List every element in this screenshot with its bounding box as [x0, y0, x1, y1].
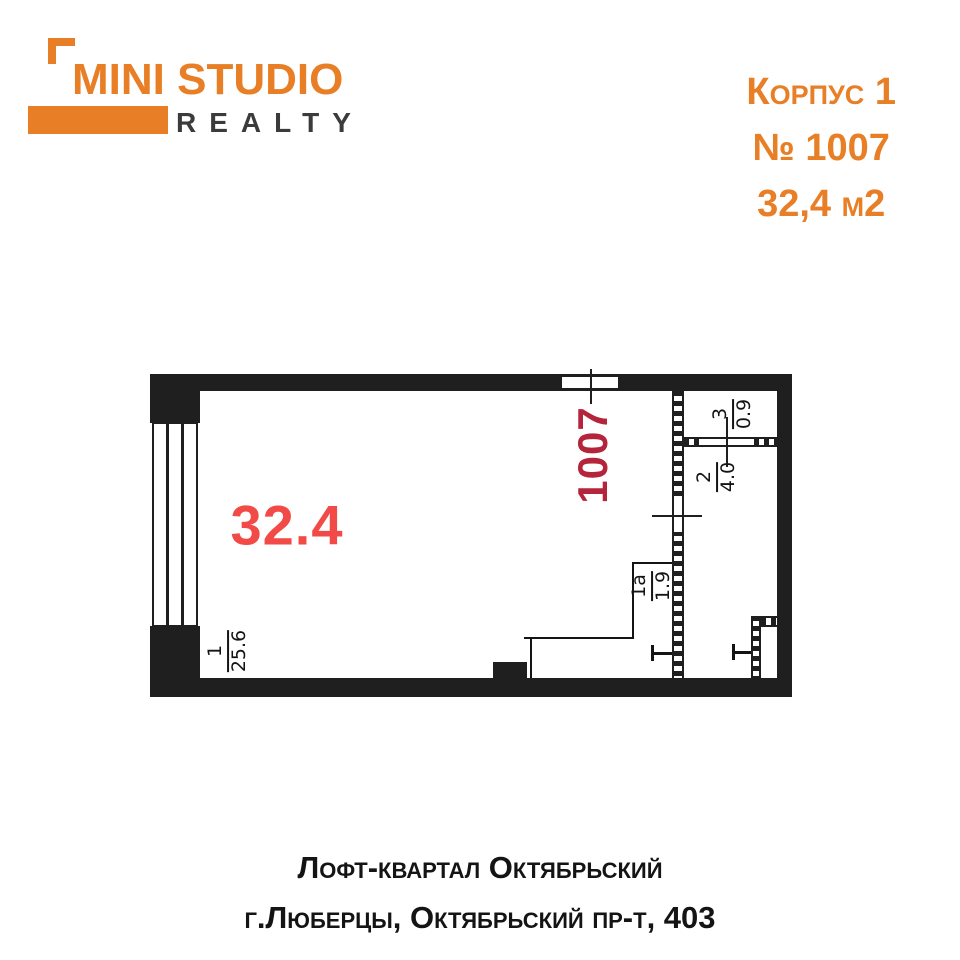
unit-number-label: № 1007: [746, 120, 896, 176]
total-area-label: 32.4: [231, 493, 344, 558]
towel-rail-icon: [732, 644, 735, 660]
address-line2: г.Люберцы, Октябрьский пр-т, 403: [0, 893, 960, 943]
partition-wall-vertical: [672, 391, 684, 678]
page: MINI STUDIO REALTY Корпус 1 № 1007 32,4 …: [0, 0, 960, 960]
apartment-number-label: 1007: [569, 406, 617, 503]
room-number: 1а: [630, 574, 650, 598]
room-label-3: 3 0.9: [711, 399, 755, 429]
wall-left-bottom: [150, 626, 200, 680]
towel-rail-icon: [734, 651, 751, 654]
brand-subtitle: REALTY: [176, 107, 364, 139]
unit-area-label: 32,4 м2: [746, 176, 896, 232]
room-label-2: 2 4.0: [695, 462, 739, 492]
logo-corner-bracket-icon: [48, 38, 56, 64]
towel-rail-icon: [653, 652, 672, 655]
wall-pier: [493, 662, 527, 678]
zone-line: [632, 562, 672, 564]
room-label-1: 1 25.6: [206, 630, 250, 672]
window-mullion: [181, 424, 184, 625]
wall-left-top: [150, 374, 200, 423]
towel-rail-icon: [651, 645, 654, 661]
room-number: 2: [695, 471, 715, 483]
zone-line: [530, 638, 532, 678]
floor-plan: 32.4 1007 1 25.6 1а 1.9 2 4.0 3 0.9: [150, 374, 792, 697]
zone-line: [530, 637, 634, 639]
entrance-door-tick: [590, 369, 592, 404]
room-number: 3: [711, 408, 731, 420]
room-area: 1.9: [654, 571, 674, 601]
wall-top: [150, 374, 792, 391]
wall-right: [777, 374, 792, 697]
room-label-1a: 1а 1.9: [630, 571, 674, 601]
address: Лофт-квартал Октябрьский г.Люберцы, Октя…: [0, 843, 960, 943]
partition-door-tick: [652, 515, 702, 517]
room-area: 0.9: [735, 399, 755, 429]
wall-bottom: [150, 678, 792, 697]
shaft-wall-left: [751, 616, 761, 678]
room-area: 4.0: [719, 462, 739, 492]
room-area: 25.6: [230, 630, 250, 672]
logo-underline-bar: [28, 106, 168, 134]
brand-title: MINI STUDIO: [72, 55, 392, 105]
unit-info: Корпус 1 № 1007 32,4 м2: [746, 64, 896, 232]
window-mullion: [166, 424, 169, 625]
address-line1: Лофт-квартал Октябрьский: [0, 843, 960, 893]
room-number: 1: [206, 645, 226, 657]
building-label: Корпус 1: [746, 64, 896, 120]
window: [152, 422, 198, 627]
logo: MINI STUDIO REALTY: [0, 0, 420, 150]
